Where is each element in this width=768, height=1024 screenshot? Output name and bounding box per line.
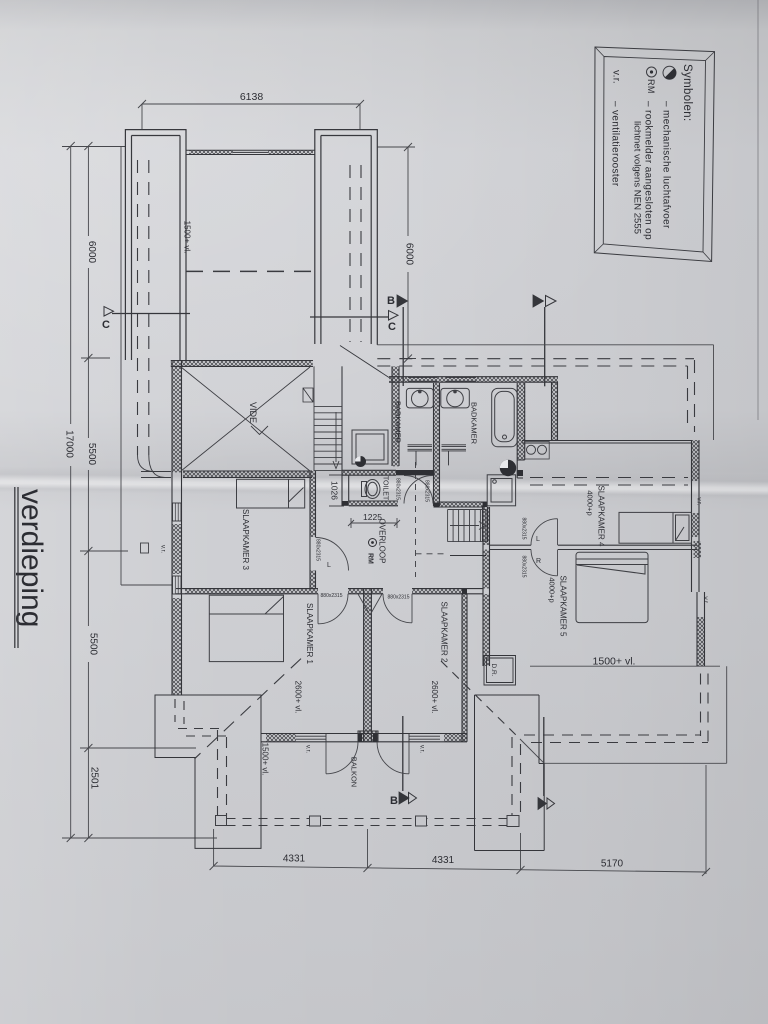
svg-text:880x2315: 880x2315 (315, 539, 321, 561)
svg-text:BALKON: BALKON (350, 757, 359, 787)
svg-text:880x2315: 880x2315 (395, 478, 401, 500)
svg-text:lichtnet volgens NEN 2555: lichtnet volgens NEN 2555 (632, 121, 643, 234)
svg-text:1026: 1026 (330, 481, 340, 500)
svg-text:B: B (387, 295, 395, 307)
svg-text:L: L (327, 562, 331, 569)
svg-text:RM: RM (367, 553, 374, 564)
svg-text:– rookmelder aangesloten o: – rookmelder aangesloten op (643, 101, 654, 240)
svg-text:6000: 6000 (86, 241, 97, 264)
svg-text:B: B (390, 795, 398, 807)
svg-text:6000: 6000 (404, 243, 415, 266)
svg-text:v.r.: v.r. (702, 596, 709, 604)
svg-text:v.r.: v.r. (611, 70, 622, 84)
svg-text:SLAAPKAMER 1: SLAAPKAMER 1 (305, 603, 314, 664)
svg-text:v.r.: v.r. (696, 497, 703, 505)
svg-text:2600+ vl.: 2600+ vl. (430, 681, 439, 714)
svg-text:RM: RM (646, 79, 656, 94)
svg-text:5500: 5500 (88, 633, 99, 656)
svg-text:R: R (536, 558, 541, 565)
svg-text:SLAAPKAMER 2: SLAAPKAMER 2 (440, 602, 449, 663)
svg-text:4331: 4331 (283, 854, 306, 865)
svg-text:SLAAPKAMER 3: SLAAPKAMER 3 (241, 509, 250, 570)
svg-text:880x2315: 880x2315 (521, 518, 527, 540)
svg-text:Symbolen:: Symbolen: (681, 64, 693, 121)
svg-text:880x2315: 880x2315 (388, 595, 410, 601)
svg-text:v.r.: v.r. (160, 545, 167, 553)
svg-text:– mechanische luchtafvoer: – mechanische luchtafvoer (661, 101, 672, 229)
svg-text:BADKAMER: BADKAMER (394, 401, 403, 444)
svg-text:880x2315: 880x2315 (321, 593, 343, 599)
svg-text:880x2315: 880x2315 (424, 480, 430, 502)
svg-text:– ventilatierooster: – ventilatierooster (610, 101, 621, 187)
svg-text:OVERLOOP: OVERLOOP (378, 519, 387, 564)
svg-text:1500+ vl.: 1500+ vl. (593, 656, 636, 668)
svg-text:1500+ vl.: 1500+ vl. (183, 221, 192, 254)
svg-text:C: C (388, 321, 396, 333)
svg-text:2501: 2501 (89, 767, 100, 790)
svg-text:SLAAPKAMER 5: SLAAPKAMER 5 (559, 576, 568, 637)
svg-text:6138: 6138 (240, 91, 264, 103)
svg-text:4331: 4331 (432, 855, 455, 866)
svg-text:880x2315: 880x2315 (521, 556, 527, 578)
svg-text:2600+ vl.: 2600+ vl. (294, 681, 303, 714)
svg-text:SLAAPKAMER 4: SLAAPKAMER 4 (597, 486, 606, 547)
svg-text:L: L (536, 536, 540, 543)
svg-text:verdieping: verdieping (15, 489, 48, 627)
svg-text:TOILET: TOILET (382, 476, 389, 501)
svg-text:1500+ vl.: 1500+ vl. (261, 743, 270, 776)
svg-text:17000: 17000 (64, 430, 75, 458)
svg-text:5500: 5500 (86, 443, 97, 466)
svg-text:BADKAMER: BADKAMER (470, 402, 479, 445)
svg-text:D.R.: D.R. (490, 664, 497, 677)
svg-text:v.r.: v.r. (419, 745, 426, 753)
svg-text:5170: 5170 (601, 859, 624, 870)
svg-text:4000+p: 4000+p (586, 490, 595, 515)
svg-text:C: C (102, 319, 110, 331)
svg-text:4000+p: 4000+p (548, 577, 557, 602)
svg-text:v.r.: v.r. (305, 745, 312, 753)
svg-text:VIDE: VIDE (248, 402, 258, 423)
